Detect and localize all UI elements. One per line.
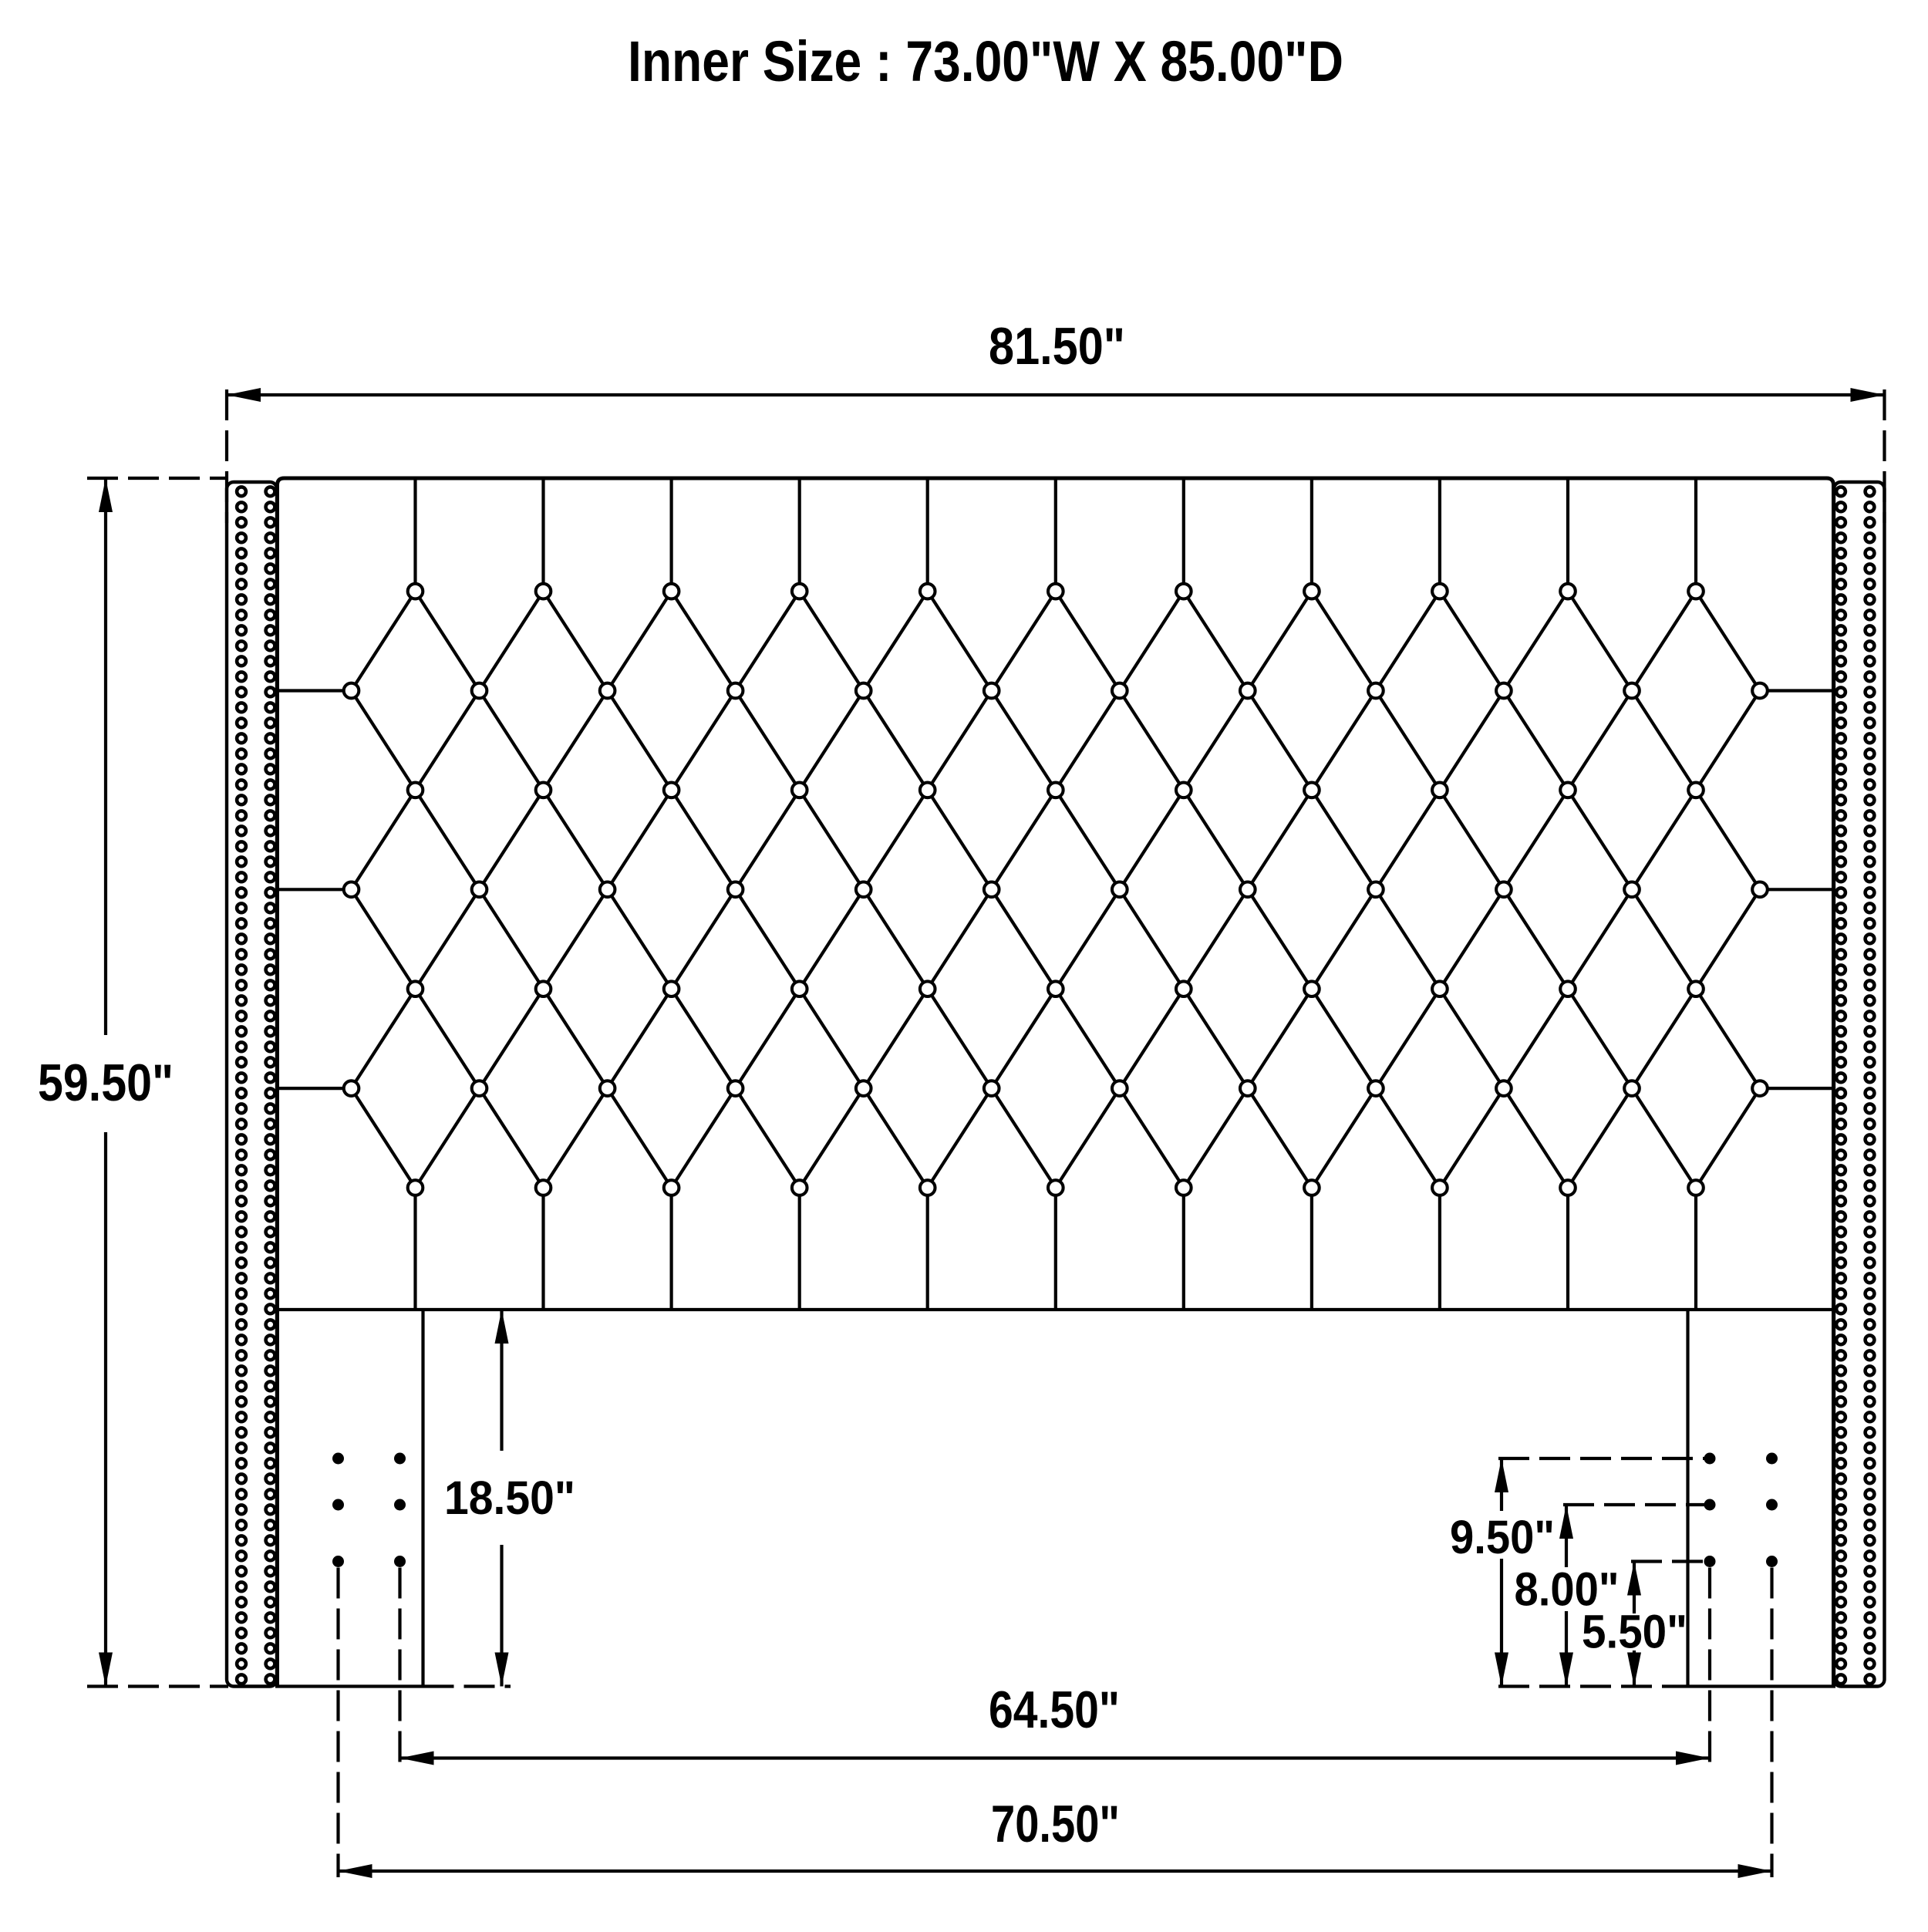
svg-text:18.50": 18.50" (444, 1472, 575, 1524)
svg-text:5.50": 5.50" (1582, 1606, 1687, 1658)
svg-text:9.50": 9.50" (1450, 1511, 1555, 1563)
svg-text:81.50": 81.50" (989, 318, 1125, 376)
svg-text:64.50": 64.50" (989, 1681, 1120, 1739)
svg-text:Inner Size : 73.00"W X 85.00"D: Inner Size : 73.00"W X 85.00"D (628, 29, 1343, 93)
svg-text:70.50": 70.50" (991, 1795, 1120, 1853)
svg-text:59.50": 59.50" (38, 1054, 174, 1112)
